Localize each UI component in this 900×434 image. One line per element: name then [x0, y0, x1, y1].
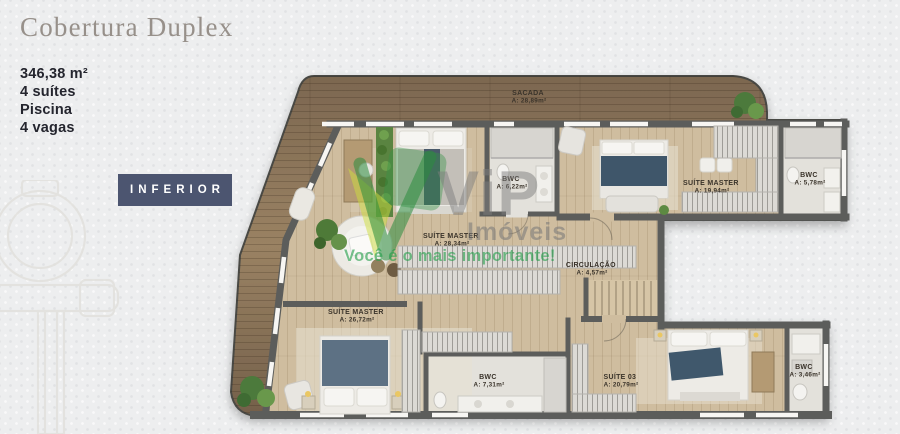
room-name: BWC: [795, 364, 813, 371]
room-area: A: 6,22m²: [496, 184, 527, 191]
room-label-suite-03: SUÍTE 03 A: 20,79m²: [604, 372, 639, 389]
room-area: A: 4,57m²: [576, 270, 607, 277]
floor-inferior-button[interactable]: INFERIOR: [118, 174, 232, 206]
room-name: SUÍTE MASTER: [328, 307, 384, 316]
room-name: BWC: [502, 176, 520, 183]
spec-total-area: 346,38 m²: [20, 65, 280, 83]
spec-suites: 4 suítes: [20, 83, 280, 101]
room-name: SACADA: [512, 90, 544, 97]
room-name: BWC: [800, 172, 818, 179]
screenshot-root: SACADA A: 28,89m² BWC A: 6,22m² SUÍTE MA…: [0, 0, 900, 434]
spec-pool: Piscina: [20, 101, 280, 119]
staircase: [588, 280, 658, 318]
room-area: A: 5,78m²: [794, 180, 825, 187]
room-label-sacada: SACADA A: 28,89m²: [512, 90, 547, 105]
room-name: SUÍTE MASTER: [423, 231, 479, 240]
room-area: A: 28,89m²: [512, 98, 547, 105]
info-panel: Cobertura Duplex 346,38 m² 4 suítes Pisc…: [20, 12, 280, 137]
spec-parking: 4 vagas: [20, 119, 280, 137]
room-area: A: 20,79m²: [604, 382, 639, 389]
room-area: A: 7,31m²: [473, 382, 504, 389]
room-area: A: 26,72m²: [340, 317, 375, 324]
room-name: BWC: [479, 374, 497, 381]
room-name: CIRCULAÇÃO: [566, 260, 616, 269]
page-title: Cobertura Duplex: [20, 12, 280, 43]
room-name: SUÍTE 03: [604, 372, 637, 381]
room-area: A: 28,34m²: [435, 241, 470, 248]
room-area: A: 3,46m²: [789, 372, 820, 379]
spec-list: 346,38 m² 4 suítes Piscina 4 vagas: [20, 65, 280, 137]
room-area: A: 19,94m²: [695, 188, 730, 195]
room-name: SUÍTE MASTER: [683, 178, 739, 187]
floor-plan-graphic: SACADA A: 28,89m² BWC A: 6,22m² SUÍTE MA…: [231, 76, 846, 416]
